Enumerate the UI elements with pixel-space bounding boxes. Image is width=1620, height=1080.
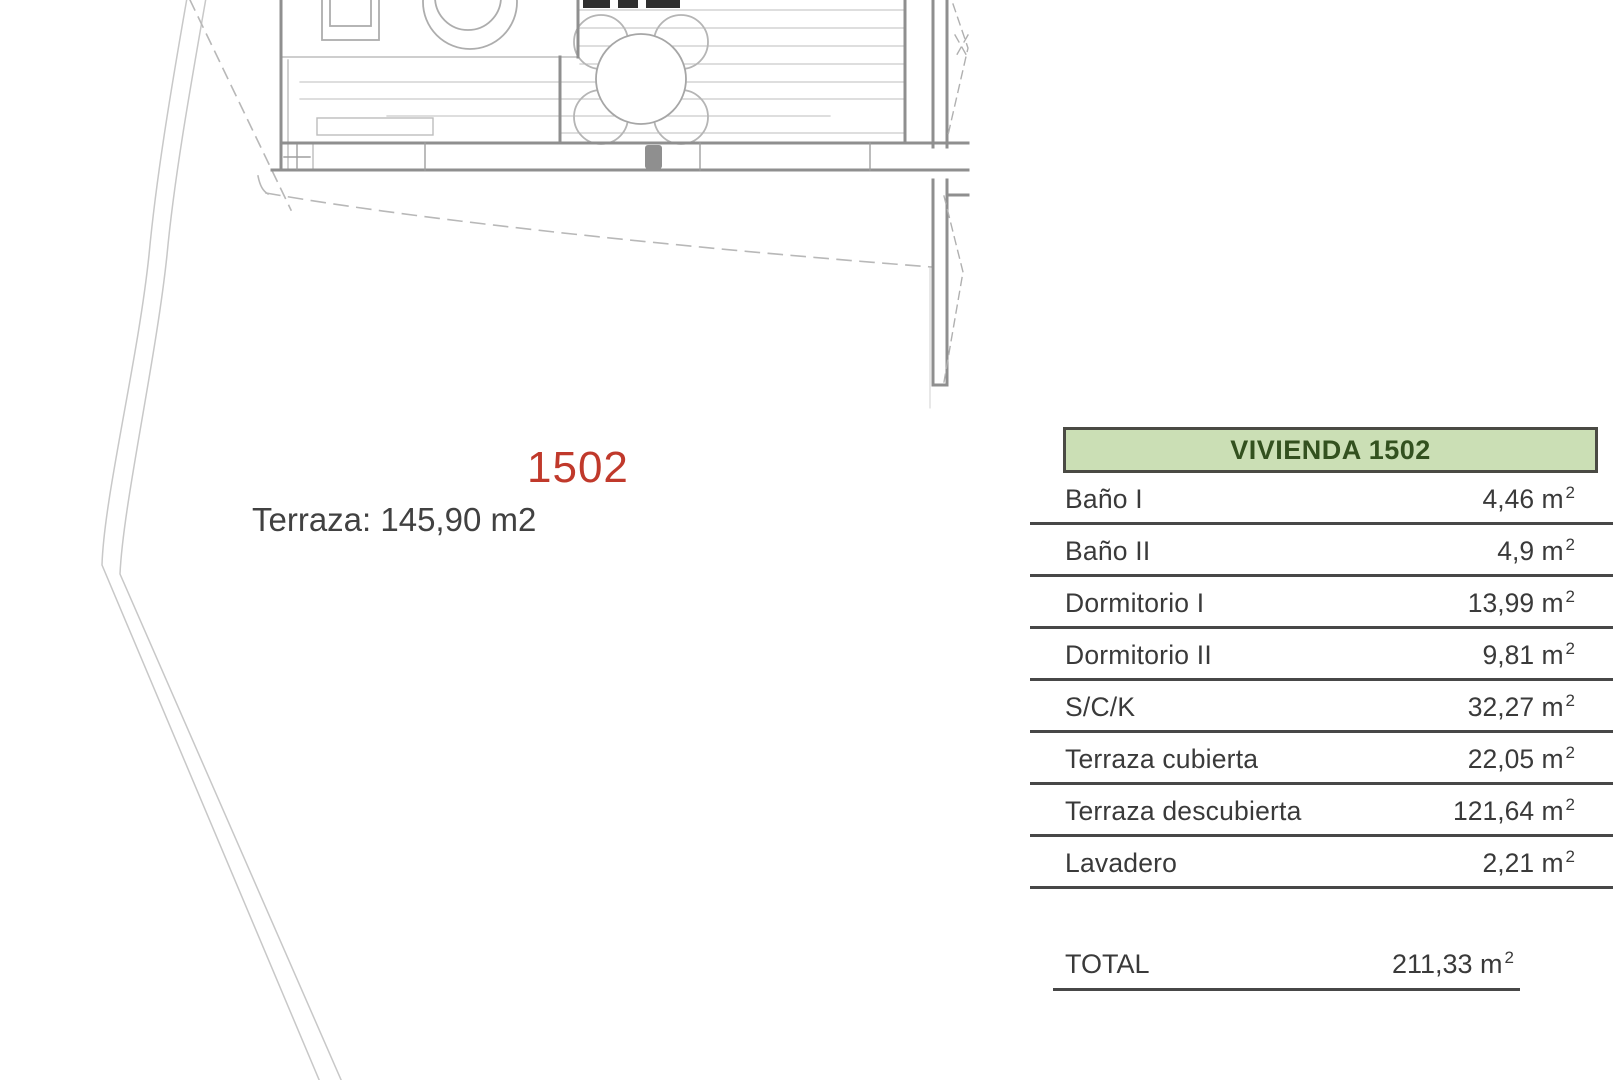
plot-boundary-lines <box>102 0 342 1080</box>
wall-ticks <box>284 143 870 170</box>
table-row: Baño I 4,46 m2 <box>1030 473 1613 525</box>
table-row: Lavadero 2,21 m2 <box>1030 837 1613 889</box>
total-label: TOTAL <box>1065 949 1150 980</box>
row-value: 32,27 m2 <box>1468 691 1575 723</box>
row-label: Baño I <box>1065 484 1143 515</box>
table-header: VIVIENDA 1502 <box>1063 427 1598 473</box>
clipped-label-fragments <box>583 0 680 8</box>
row-value: 4,9 m2 <box>1497 535 1575 567</box>
step-rect <box>317 118 433 135</box>
door-pivot <box>645 145 662 169</box>
row-label: Terraza cubierta <box>1065 744 1258 775</box>
row-label: Terraza descubierta <box>1065 796 1302 827</box>
row-label: Lavadero <box>1065 848 1177 879</box>
furniture <box>322 0 517 49</box>
row-value: 13,99 m2 <box>1468 587 1575 619</box>
table-row: Dormitorio II 9,81 m2 <box>1030 629 1613 681</box>
row-value: 121,64 m2 <box>1453 795 1575 827</box>
page: 1502 Terraza: 145,90 m2 VIVIENDA 1502 Ba… <box>0 0 1620 1080</box>
unit-number-label: 1502 <box>527 446 629 490</box>
dining-set <box>574 15 708 144</box>
table-row: S/C/K 32,27 m2 <box>1030 681 1613 733</box>
round-table <box>596 34 686 124</box>
row-label: Baño II <box>1065 536 1150 567</box>
row-label: Dormitorio I <box>1065 588 1204 619</box>
table-row: Terraza descubierta 121,64 m2 <box>1030 785 1613 837</box>
row-value: 9,81 m2 <box>1483 639 1576 671</box>
table-row: Terraza cubierta 22,05 m2 <box>1030 733 1613 785</box>
row-value: 4,46 m2 <box>1483 483 1576 515</box>
row-value: 2,21 m2 <box>1483 847 1576 879</box>
terrace-area-label: Terraza: 145,90 m2 <box>252 503 536 536</box>
total-row: TOTAL 211,33 m2 <box>1053 933 1520 991</box>
interior-lines <box>281 57 578 170</box>
table-row: Dormitorio I 13,99 m2 <box>1030 577 1613 629</box>
row-label: Dormitorio II <box>1065 640 1212 671</box>
total-value: 211,33 m2 <box>1392 948 1514 980</box>
table-row: Baño II 4,9 m2 <box>1030 525 1613 577</box>
row-value: 22,05 m2 <box>1468 743 1575 775</box>
area-table: VIVIENDA 1502 Baño I 4,46 m2 Baño II 4,9… <box>1030 427 1613 991</box>
table-spacer <box>1030 889 1613 933</box>
row-label: S/C/K <box>1065 692 1135 723</box>
